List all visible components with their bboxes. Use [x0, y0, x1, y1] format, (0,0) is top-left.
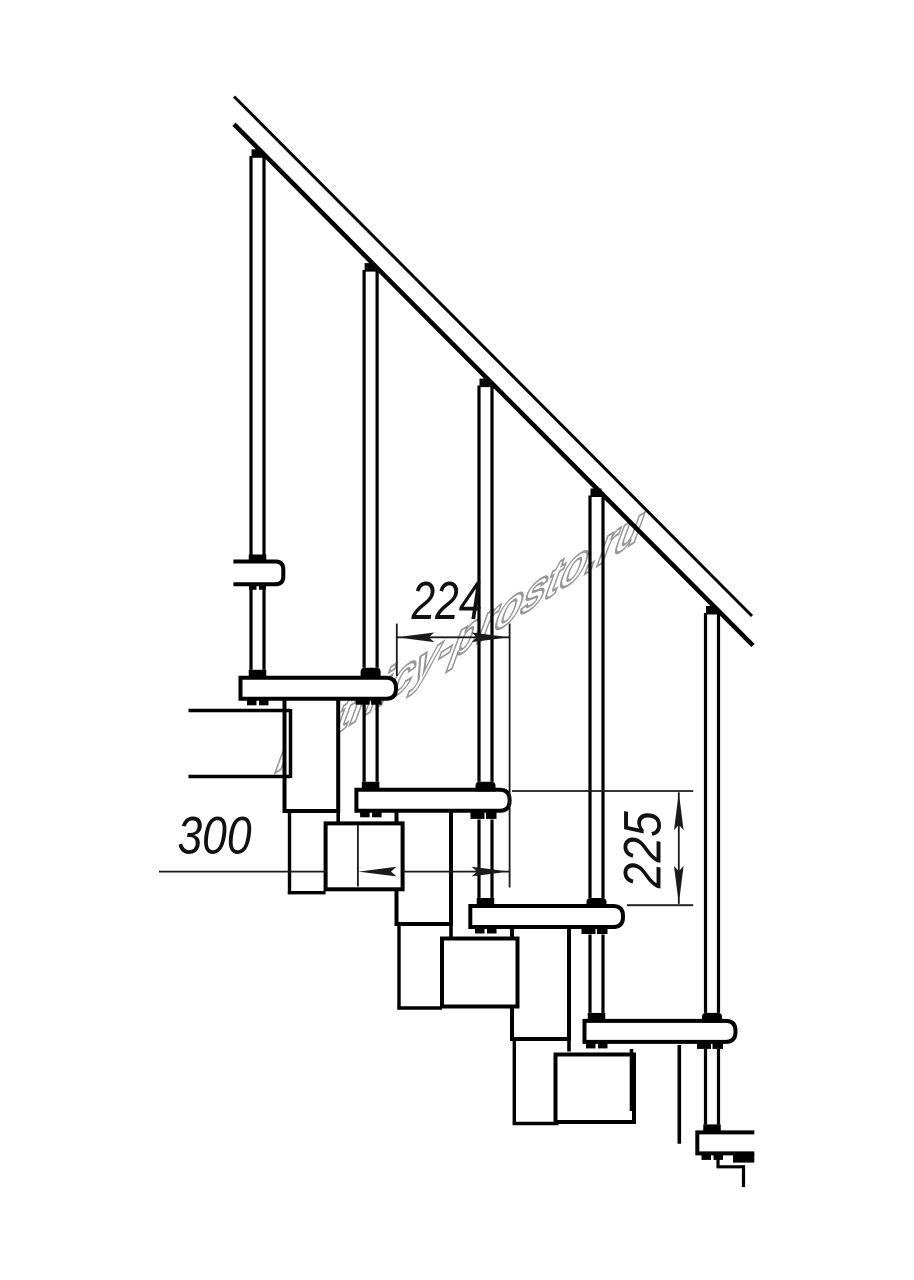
svg-text:225: 225 — [614, 811, 673, 889]
svg-text:224: 224 — [411, 571, 483, 631]
svg-text:300: 300 — [178, 807, 252, 866]
